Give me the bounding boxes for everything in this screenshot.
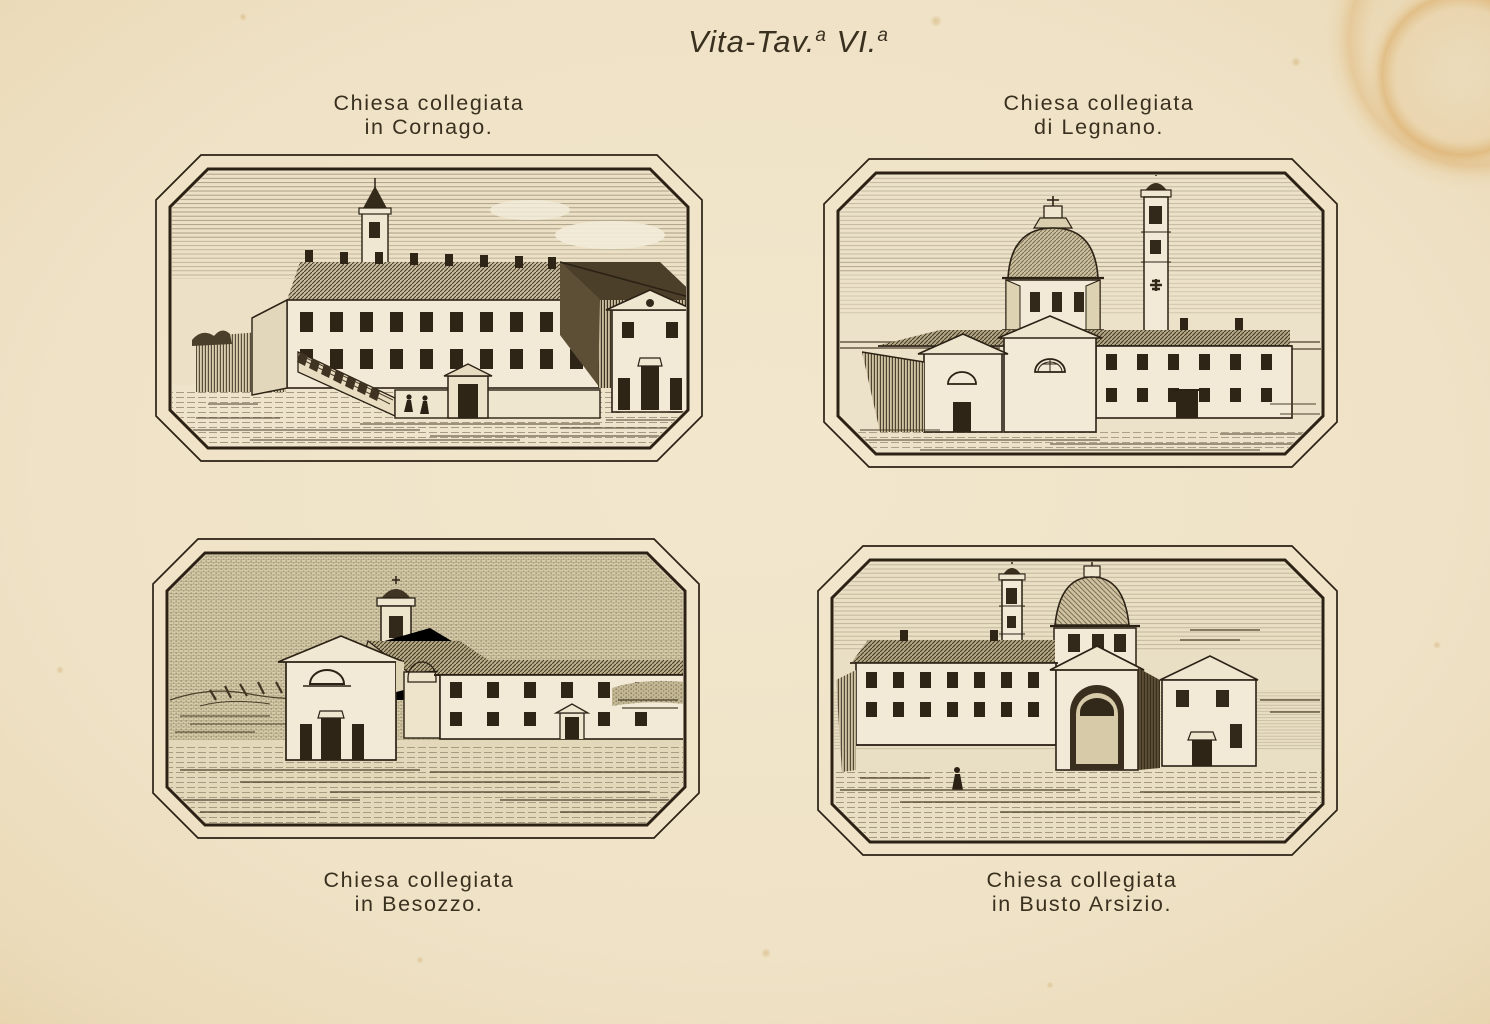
svg-text:di Legnano.: di Legnano. [1034, 115, 1164, 139]
svg-text:Chiesa collegiata: Chiesa collegiata [324, 868, 515, 892]
svg-text:Chiesa collegiata: Chiesa collegiata [1004, 91, 1195, 115]
svg-text:in Besozzo.: in Besozzo. [355, 892, 484, 916]
svg-text:Vita-Tav.a VI.a: Vita-Tav.a VI.a [688, 24, 889, 59]
svg-text:Chiesa collegiata: Chiesa collegiata [987, 868, 1178, 892]
svg-text:Chiesa collegiata: Chiesa collegiata [334, 91, 525, 115]
svg-text:in Busto Arsizio.: in Busto Arsizio. [992, 892, 1172, 916]
svg-text:in Cornago.: in Cornago. [365, 115, 494, 139]
